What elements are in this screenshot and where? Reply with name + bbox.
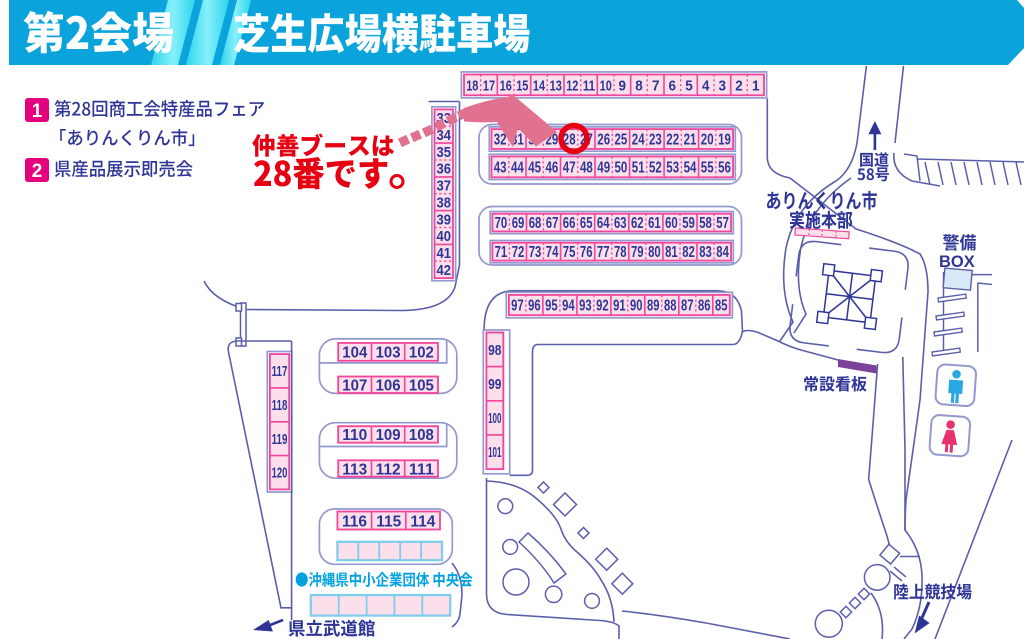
svg-text:40: 40 [437,229,452,245]
svg-text:61: 61 [648,215,661,232]
svg-text:55: 55 [701,160,714,177]
svg-text:106: 106 [376,378,401,395]
svg-text:49: 49 [597,160,610,177]
svg-text:109: 109 [376,427,401,444]
svg-text:36: 36 [437,162,452,178]
svg-text:102: 102 [409,345,434,362]
svg-text:113: 113 [342,461,367,478]
svg-text:26: 26 [597,132,610,149]
svg-text:59: 59 [682,215,695,232]
svg-text:10: 10 [600,77,612,94]
svg-text:80: 80 [648,244,661,261]
svg-text:72: 72 [512,244,525,261]
svg-text:77: 77 [597,244,610,261]
svg-text:79: 79 [631,244,644,261]
svg-text:119: 119 [272,432,288,448]
svg-text:15: 15 [516,77,528,94]
svg-text:115: 115 [376,513,401,530]
svg-text:37: 37 [437,179,452,195]
svg-text:12: 12 [566,77,578,94]
svg-text:19: 19 [718,132,731,149]
svg-text:97: 97 [511,298,524,315]
svg-text:82: 82 [682,244,695,261]
svg-text:53: 53 [666,160,679,177]
svg-text:45: 45 [528,160,541,177]
svg-text:48: 48 [580,160,593,177]
svg-text:66: 66 [563,215,576,232]
svg-text:70: 70 [495,215,508,232]
svg-text:44: 44 [511,160,524,177]
svg-text:11: 11 [583,77,595,94]
svg-text:105: 105 [409,378,434,395]
svg-text:56: 56 [718,160,731,177]
svg-text:47: 47 [563,160,576,177]
svg-text:1: 1 [752,77,760,94]
svg-text:21: 21 [684,132,697,149]
svg-text:84: 84 [716,244,729,261]
svg-text:16: 16 [500,77,512,94]
svg-text:94: 94 [562,298,575,315]
svg-text:75: 75 [563,244,576,261]
svg-text:20: 20 [701,132,714,149]
svg-text:62: 62 [631,215,644,232]
svg-text:101: 101 [488,445,501,461]
svg-text:3: 3 [719,77,727,94]
svg-text:78: 78 [614,244,627,261]
svg-text:54: 54 [684,160,697,177]
svg-text:69: 69 [512,215,525,232]
svg-text:67: 67 [546,215,559,232]
svg-text:64: 64 [597,215,610,232]
svg-text:32: 32 [494,132,507,149]
svg-text:41: 41 [437,246,452,262]
svg-text:73: 73 [529,244,542,261]
svg-text:63: 63 [614,215,627,232]
svg-text:7: 7 [652,77,660,94]
svg-text:18: 18 [466,77,478,94]
svg-text:1: 1 [32,101,43,122]
svg-text:86: 86 [698,298,711,315]
svg-text:9: 9 [619,77,627,94]
svg-text:8: 8 [635,77,643,94]
svg-text:112: 112 [376,461,401,478]
svg-text:43: 43 [494,160,507,177]
svg-text:17: 17 [483,77,495,94]
svg-text:118: 118 [272,398,288,414]
svg-text:39: 39 [437,212,452,228]
svg-text:42: 42 [437,263,452,279]
svg-text:104: 104 [342,345,367,362]
svg-text:117: 117 [272,364,288,380]
svg-text:114: 114 [410,513,435,530]
svg-text:110: 110 [342,427,367,444]
svg-text:50: 50 [615,160,628,177]
svg-text:22: 22 [666,132,679,149]
svg-text:38: 38 [437,195,452,211]
svg-text:46: 46 [546,160,559,177]
svg-text:71: 71 [495,244,508,261]
svg-text:2: 2 [32,161,43,182]
svg-text:13: 13 [550,77,562,94]
svg-text:81: 81 [665,244,678,261]
svg-text:111: 111 [409,461,434,478]
svg-text:103: 103 [376,345,401,362]
svg-text:93: 93 [579,298,592,315]
svg-text:60: 60 [665,215,678,232]
svg-text:2: 2 [735,77,743,94]
svg-text:87: 87 [681,298,694,315]
svg-text:35: 35 [437,145,452,161]
svg-text:58: 58 [699,215,712,232]
svg-text:88: 88 [664,298,677,315]
svg-text:92: 92 [596,298,609,315]
svg-text:99: 99 [488,377,501,393]
svg-text:98: 98 [488,343,501,359]
svg-text:120: 120 [272,466,288,482]
svg-text:25: 25 [615,132,628,149]
svg-text:91: 91 [613,298,626,315]
svg-text:57: 57 [716,215,729,232]
svg-text:24: 24 [632,132,645,149]
svg-text:51: 51 [632,160,645,177]
svg-text:116: 116 [342,513,367,530]
svg-text:85: 85 [715,298,728,315]
svg-text:65: 65 [580,215,593,232]
svg-text:52: 52 [649,160,662,177]
svg-text:76: 76 [580,244,593,261]
svg-text:74: 74 [546,244,559,261]
svg-text:100: 100 [488,411,501,427]
svg-text:89: 89 [647,298,660,315]
svg-text:14: 14 [533,77,546,94]
svg-text:6: 6 [669,77,677,94]
svg-text:107: 107 [342,378,367,395]
svg-text:4: 4 [702,77,710,94]
svg-text:108: 108 [409,427,434,444]
svg-text:83: 83 [699,244,712,261]
svg-text:68: 68 [529,215,542,232]
svg-text:23: 23 [649,132,662,149]
svg-text:96: 96 [528,298,541,315]
svg-text:5: 5 [685,77,693,94]
svg-text:95: 95 [545,298,558,315]
svg-text:90: 90 [630,298,643,315]
